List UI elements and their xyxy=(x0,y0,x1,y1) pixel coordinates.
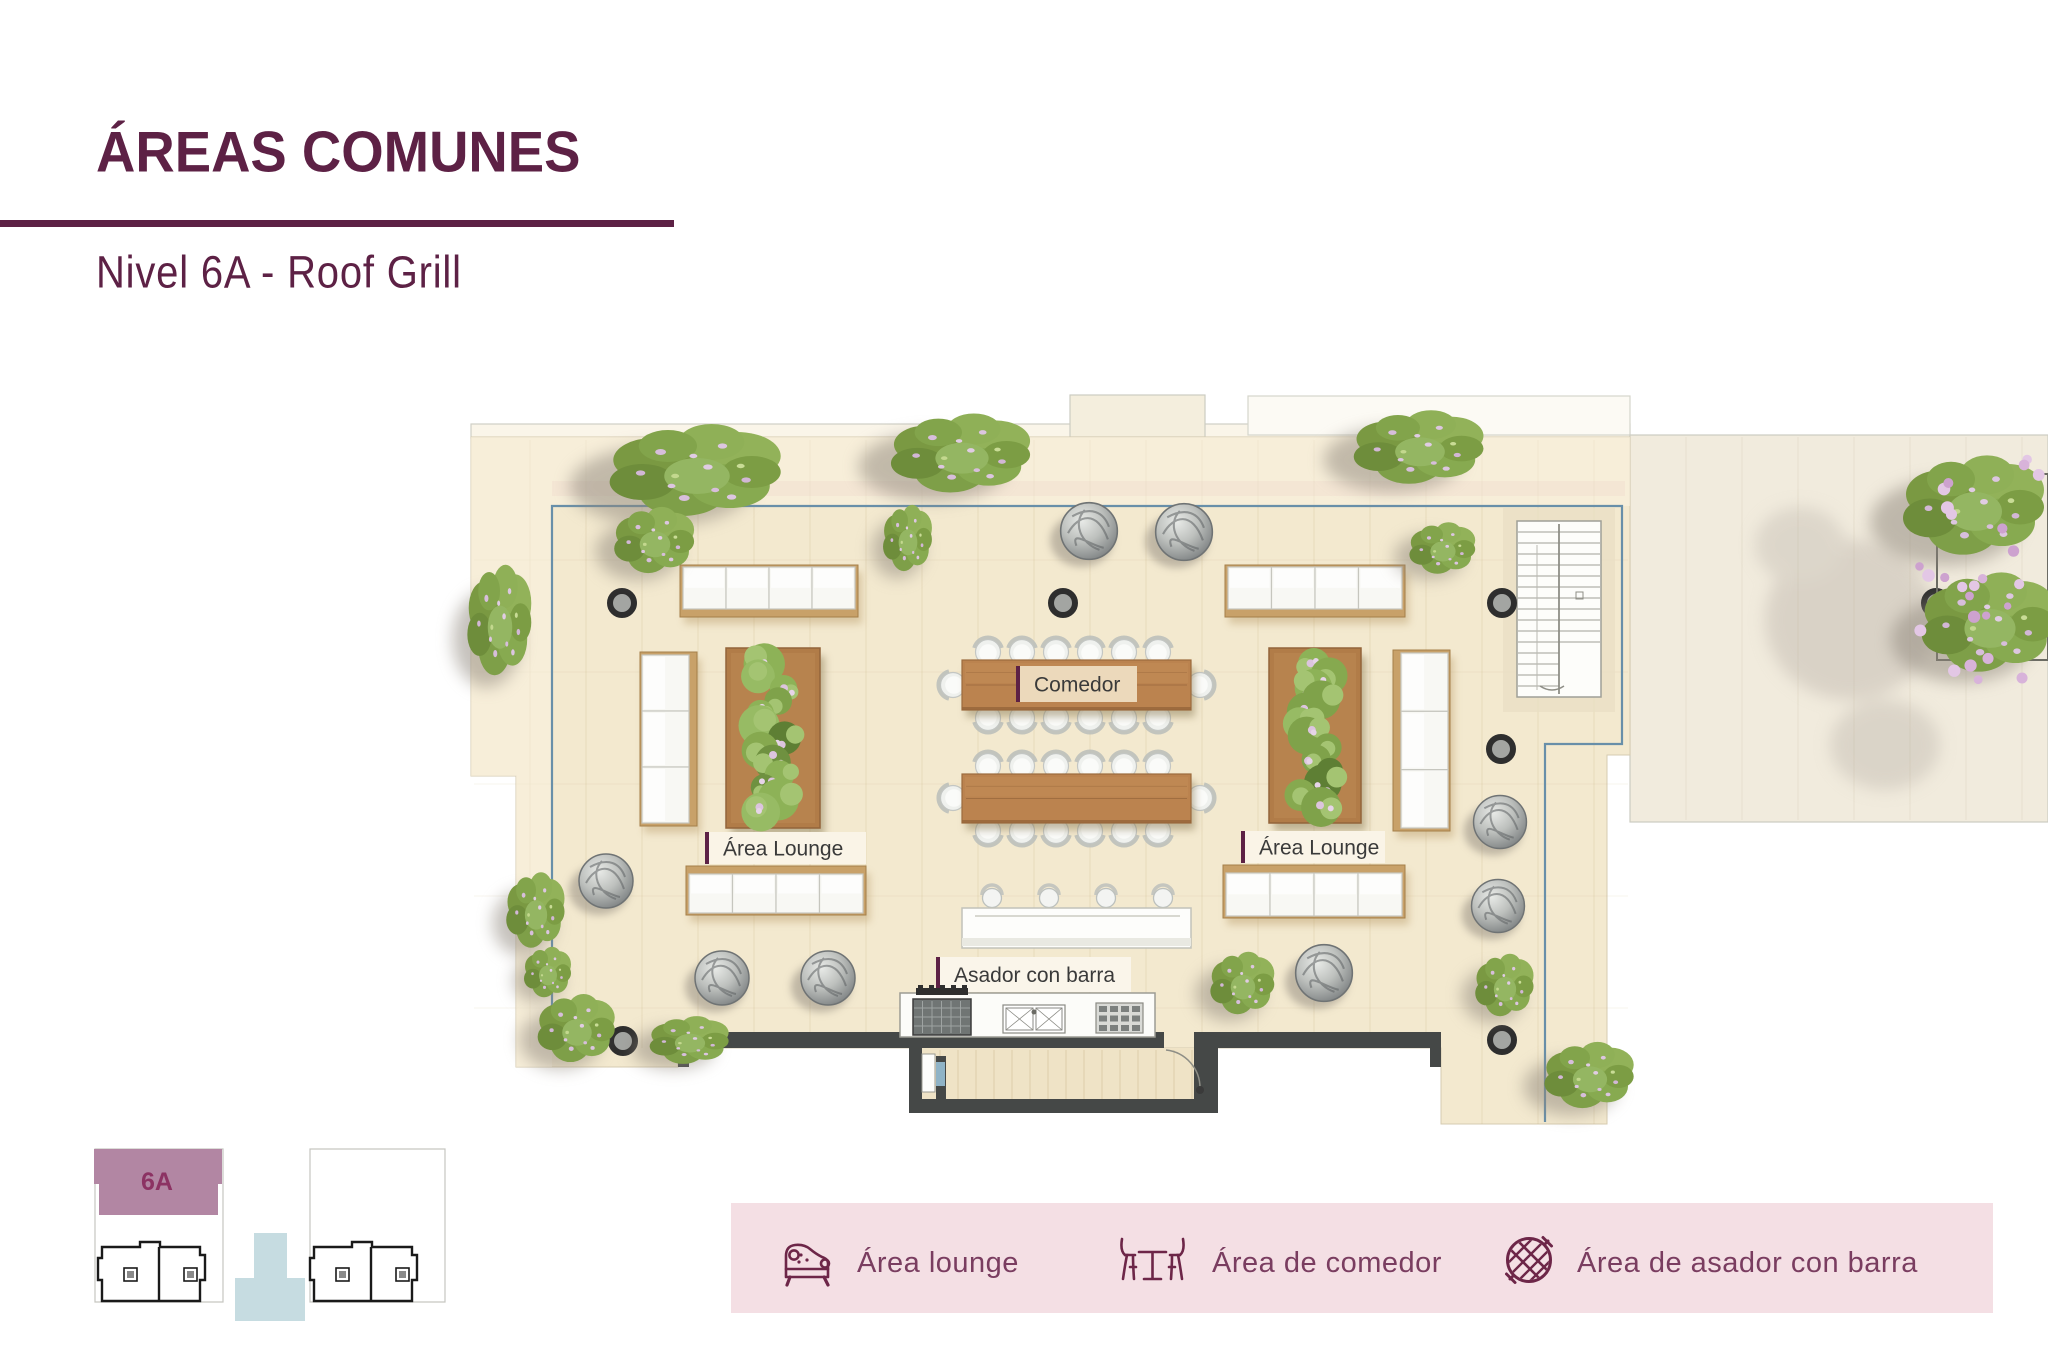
svg-text:Área Lounge: Área Lounge xyxy=(723,838,843,861)
svg-text:Área Lounge: Área Lounge xyxy=(1259,837,1379,860)
svg-text:Área de asador con barra: Área de asador con barra xyxy=(1577,1246,1918,1279)
svg-text:Área de comedor: Área de comedor xyxy=(1212,1246,1442,1279)
svg-text:Asador con barra: Asador con barra xyxy=(954,964,1115,987)
svg-text:Comedor: Comedor xyxy=(1034,674,1120,697)
svg-text:6A: 6A xyxy=(141,1168,173,1196)
svg-text:Área lounge: Área lounge xyxy=(857,1246,1019,1279)
